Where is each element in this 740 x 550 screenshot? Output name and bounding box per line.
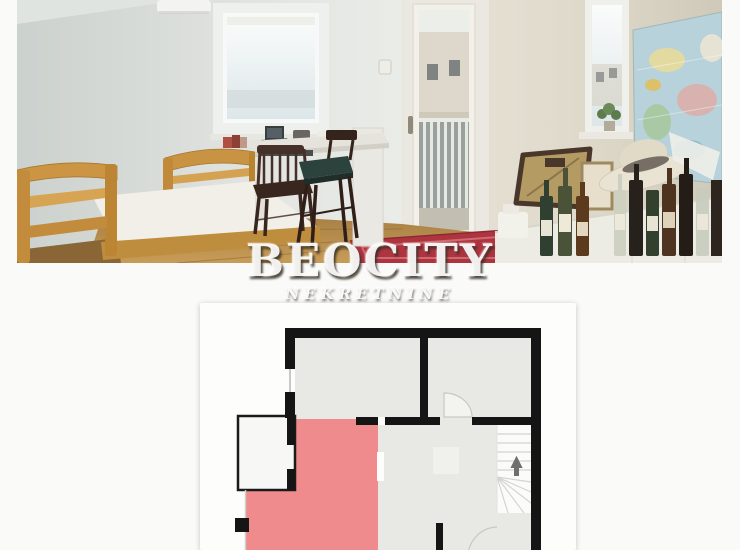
plan-balcony: [238, 416, 295, 490]
floor-plan-card: ▲: [200, 303, 576, 550]
plan-opening-notch: [377, 452, 384, 481]
light-switch: [379, 60, 391, 74]
stairs-up-arrow-icon: ▲: [510, 451, 523, 470]
window: [210, 3, 332, 140]
balcony-door: [403, 0, 489, 258]
balcony-railing: [419, 118, 469, 208]
room-photo-graphic: [17, 0, 722, 263]
plan-furniture: [433, 447, 459, 474]
room-photo: [17, 0, 722, 263]
plan-stairs: ▲: [497, 425, 531, 513]
air-conditioner: [157, 0, 211, 14]
door-handle: [408, 116, 413, 134]
watermark-tagline: NEKRETNINE: [0, 285, 740, 303]
listing-image: BEOCITY NEKRETNINE: [0, 0, 740, 550]
floor-plan-graphic: ▲: [200, 303, 576, 550]
plan-wall-gap: [378, 417, 385, 425]
tall-window: [579, 0, 633, 139]
appliance: [498, 212, 528, 238]
